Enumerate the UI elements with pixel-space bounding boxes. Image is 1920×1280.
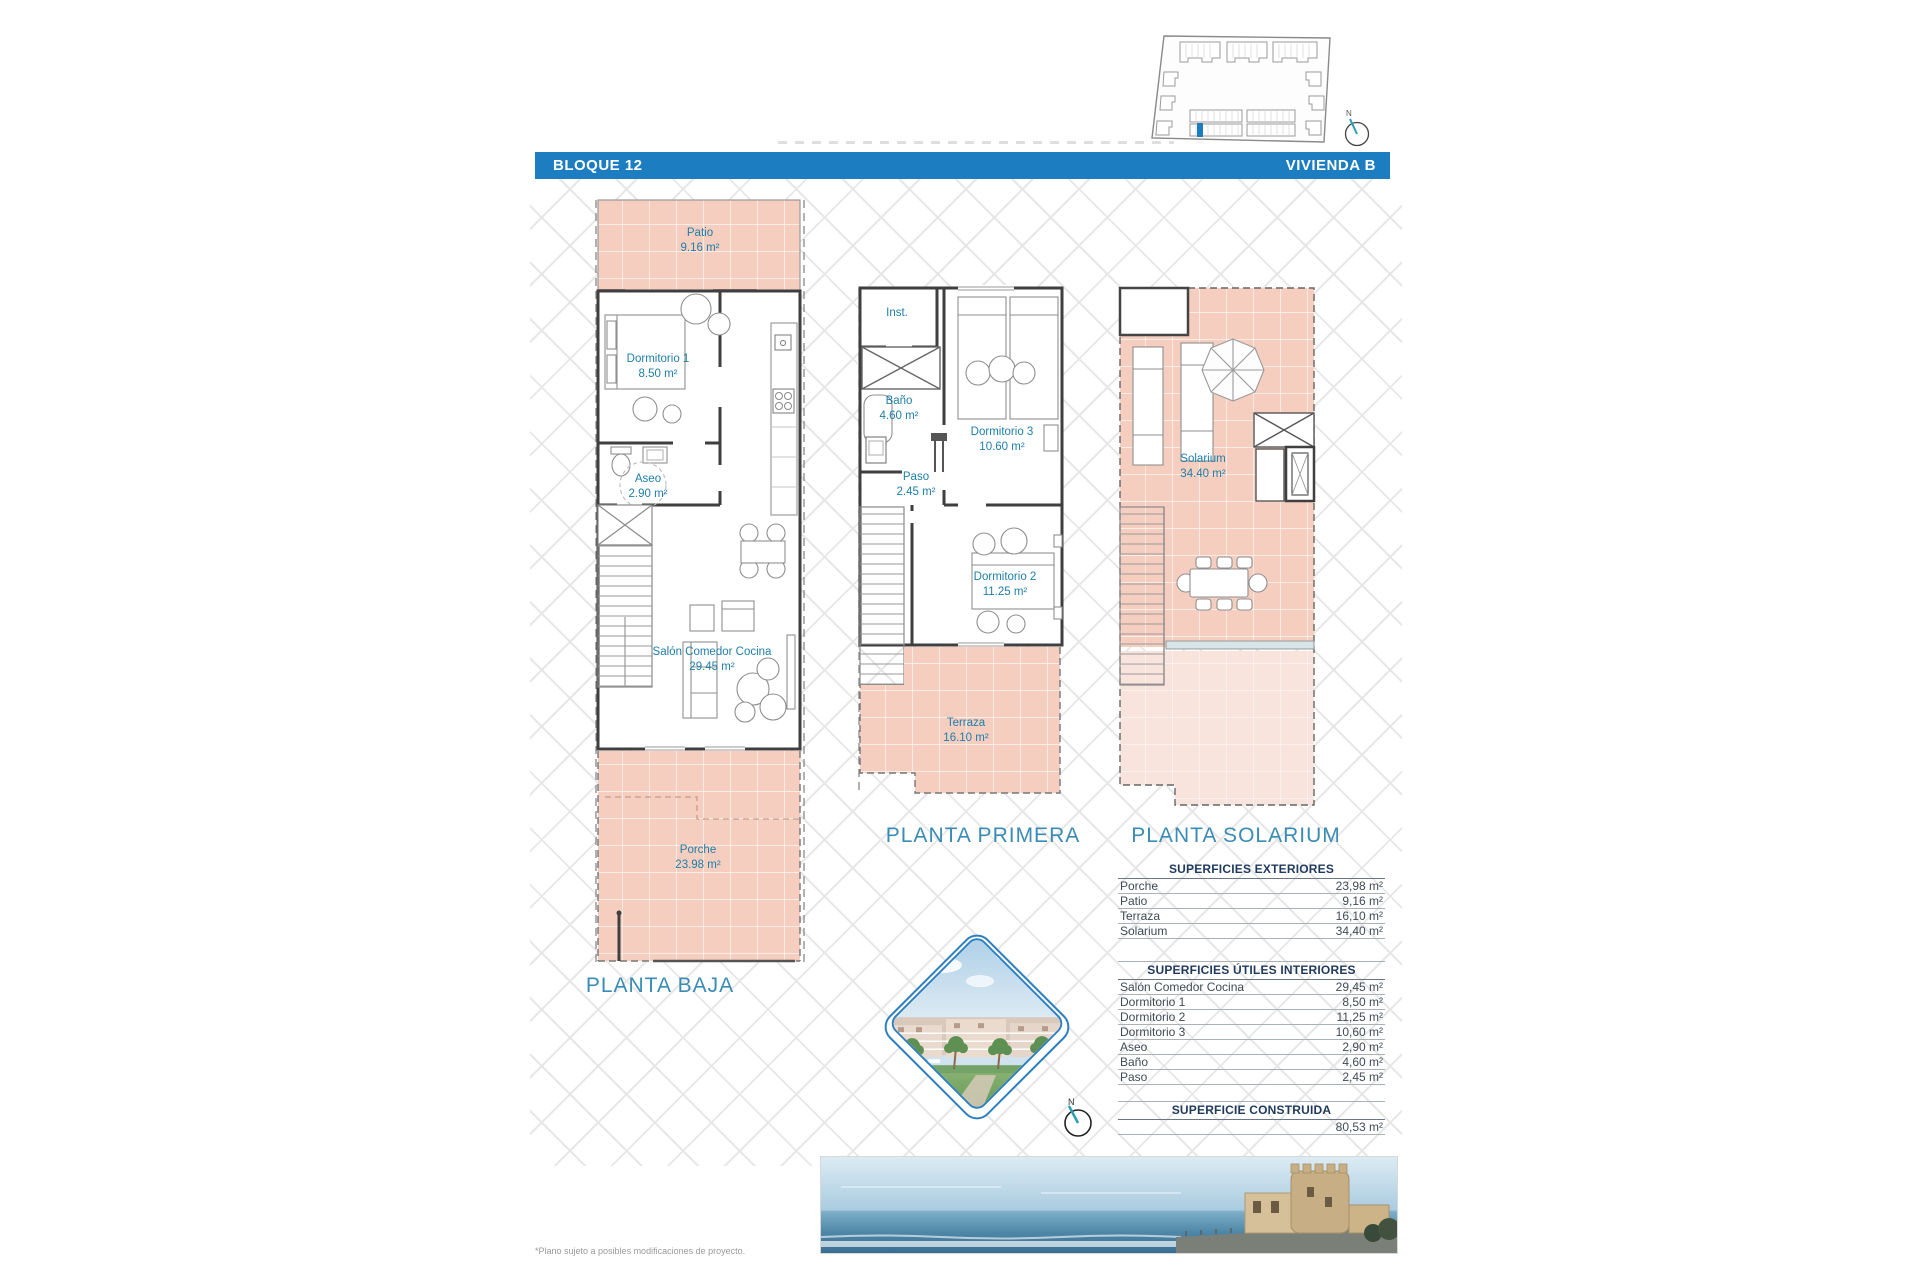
compass-bottom-icon: N xyxy=(1052,1092,1104,1144)
title-planta-primera: PLANTA PRIMERA xyxy=(886,824,1081,848)
table-row: Patio9,16 m² xyxy=(1118,894,1385,909)
plan-planta-primera xyxy=(858,285,1064,845)
faded-text-line xyxy=(778,141,1174,144)
label-bano: Baño4.60 m² xyxy=(880,394,919,424)
label-porche: Porche23.98 m² xyxy=(675,843,720,873)
closet-x xyxy=(862,347,940,389)
label-salon: Salón Comedor Cocina29.45 m² xyxy=(653,645,772,675)
label-dormitorio1: Dormitorio 18.50 m² xyxy=(627,352,690,382)
table-row: Aseo2,90 m² xyxy=(1118,1040,1385,1055)
label-dormitorio3: Dormitorio 310.60 m² xyxy=(971,425,1034,455)
table-row: Dormitorio 310,60 m² xyxy=(1118,1025,1385,1040)
svg-text:N: N xyxy=(1068,1097,1075,1107)
construida-value: 80,53 m² xyxy=(1118,1120,1385,1135)
stairs-primera xyxy=(860,507,904,685)
planta-primera-drawing xyxy=(858,285,1064,845)
svg-text:N: N xyxy=(1346,109,1352,118)
coastal-photo-scene xyxy=(821,1157,1397,1253)
table-row: Dormitorio 18,50 m² xyxy=(1118,995,1385,1010)
unit-label: VIVIENDA B xyxy=(1286,157,1390,174)
table-row: Dormitorio 211,25 m² xyxy=(1118,1010,1385,1025)
surfaces-tables: SUPERFICIES EXTERIORES Porche23,98 m² Pa… xyxy=(1118,861,1385,1135)
table-row: Solarium34,40 m² xyxy=(1118,924,1385,939)
compass-top-icon: N xyxy=(1338,103,1378,151)
label-aseo: Aseo2.90 m² xyxy=(629,472,668,502)
balustrade xyxy=(1166,641,1314,649)
label-paso: Paso2.45 m² xyxy=(897,470,936,500)
shaft xyxy=(1286,447,1314,501)
table-row: Porche23,98 m² xyxy=(1118,879,1385,894)
plan-sheet: BLOQUE 12 VIVIENDA B N xyxy=(0,0,1920,1280)
header-bar: BLOQUE 12 VIVIENDA B xyxy=(535,152,1390,179)
highlighted-unit xyxy=(1197,123,1203,137)
table-row: Salón Comedor Cocina29,45 m² xyxy=(1118,980,1385,995)
label-solarium: Solarium34.40 m² xyxy=(1180,452,1225,482)
stairs-solarium xyxy=(1120,507,1164,685)
planta-solarium-drawing xyxy=(1118,285,1318,845)
top-room xyxy=(1120,288,1188,335)
block-label: BLOQUE 12 xyxy=(535,157,643,174)
plan-planta-solarium xyxy=(1118,285,1318,845)
table-row: Baño4,60 m² xyxy=(1118,1055,1385,1070)
exteriores-title: SUPERFICIES EXTERIORES xyxy=(1118,861,1385,879)
table-row: Terraza16,10 m² xyxy=(1118,909,1385,924)
site-plan xyxy=(1148,28,1348,150)
label-patio: Patio9.16 m² xyxy=(681,226,720,256)
stairs-baja xyxy=(598,505,652,687)
label-dormitorio2: Dormitorio 211.25 m² xyxy=(974,570,1037,600)
kitchen-counter xyxy=(771,323,797,515)
table-row: Paso2,45 m² xyxy=(1118,1070,1385,1085)
footnote: *Plano sujeto a posibles modificaciones … xyxy=(535,1246,745,1256)
coastal-tower-photo xyxy=(820,1156,1398,1254)
title-planta-baja: PLANTA BAJA xyxy=(586,974,734,998)
label-terraza: Terraza16.10 m² xyxy=(943,716,988,746)
label-inst: Inst. xyxy=(886,306,908,321)
construida-title: SUPERFICIE CONSTRUIDA xyxy=(1118,1101,1385,1120)
umbrella xyxy=(1202,339,1264,401)
plan-planta-baja xyxy=(595,197,805,1007)
title-planta-solarium: PLANTA SOLARIUM xyxy=(1131,824,1341,848)
interiores-title: SUPERFICIES ÚTILES INTERIORES xyxy=(1118,961,1385,980)
